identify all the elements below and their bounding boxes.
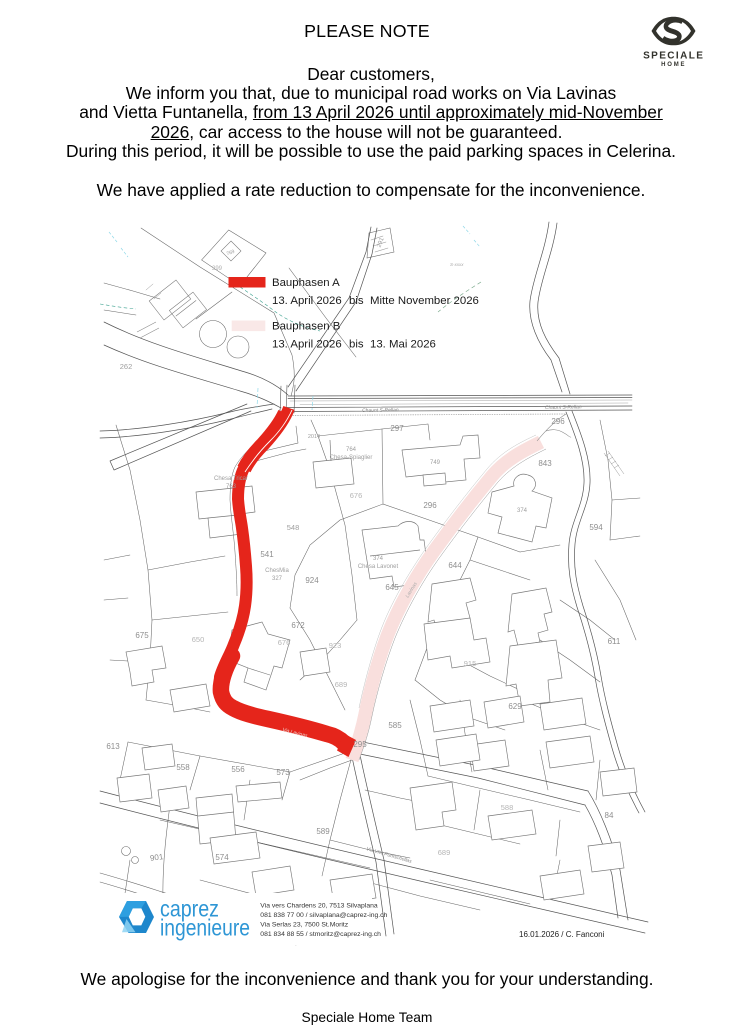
- svg-text:13. April 2026bis13. Mai 2026: 13. April 2026bis13. Mai 2026: [272, 339, 436, 351]
- svg-text:689: 689: [438, 848, 451, 857]
- svg-text:295: 295: [353, 740, 367, 749]
- svg-text:84: 84: [605, 811, 614, 820]
- svg-text:Chesa Tricar: Chesa Tricar: [214, 476, 248, 482]
- svg-text:749: 749: [430, 460, 441, 466]
- svg-text:588: 588: [501, 803, 514, 812]
- svg-text:374: 374: [517, 508, 528, 514]
- svg-text:Bauphasen B: Bauphasen B: [272, 321, 340, 333]
- svg-text:299: 299: [212, 266, 223, 272]
- svg-text:541: 541: [260, 550, 274, 559]
- svg-text:262: 262: [120, 362, 133, 371]
- svg-text:644: 644: [448, 561, 462, 570]
- svg-text:2014: 2014: [308, 434, 320, 440]
- svg-text:327: 327: [272, 576, 283, 582]
- svg-text:585: 585: [388, 721, 402, 730]
- svg-text:548: 548: [287, 523, 300, 532]
- svg-text:Via vers Chardens 20, 7513 Sil: Via vers Chardens 20, 7513 Silvaplana: [260, 903, 378, 910]
- svg-text:924: 924: [305, 576, 319, 585]
- svg-text:901: 901: [149, 852, 164, 863]
- svg-text:Chaunt S-Rellan: Chaunt S-Rellan: [362, 407, 399, 414]
- svg-text:374: 374: [373, 556, 384, 562]
- svg-text:574: 574: [215, 853, 229, 862]
- svg-text:689: 689: [335, 680, 348, 689]
- svg-text:558: 558: [176, 763, 190, 772]
- svg-text:13. April 2026bisMitte Novembe: 13. April 2026bisMitte November 2026: [272, 295, 479, 307]
- svg-text:675: 675: [135, 631, 149, 640]
- svg-text:672: 672: [291, 621, 305, 630]
- svg-text:650: 650: [192, 635, 205, 644]
- svg-text:629: 629: [508, 702, 522, 711]
- svg-text:ingenieure: ingenieure: [160, 915, 250, 941]
- svg-text:923: 923: [329, 641, 342, 650]
- svg-text:556: 556: [231, 765, 245, 774]
- svg-text:573: 573: [276, 768, 290, 777]
- svg-text:ChesMia: ChesMia: [265, 568, 289, 574]
- svg-text:611: 611: [608, 637, 621, 646]
- svg-text:081 838 77 00 / silvaplana@cap: 081 838 77 00 / silvaplana@caprez-ing.ch: [260, 912, 387, 919]
- svg-text:676: 676: [278, 638, 291, 647]
- svg-text:764: 764: [346, 447, 357, 453]
- svg-text:769: 769: [226, 249, 236, 258]
- svg-text:Via Vier Puntschellas: Via Vier Puntschellas: [365, 846, 412, 865]
- svg-text:763: 763: [226, 484, 237, 490]
- svg-text:Chesa Lavonet: Chesa Lavonet: [358, 564, 399, 570]
- svg-text:594: 594: [589, 523, 603, 532]
- svg-text:Bauphasen A: Bauphasen A: [272, 277, 340, 289]
- svg-text:589: 589: [316, 827, 330, 836]
- svg-text:Chesa-Spiaglier: Chesa-Spiaglier: [330, 455, 373, 461]
- svg-text:613: 613: [106, 742, 120, 751]
- svg-text:Via Serlas 23, 7500 St.Moritz: Via Serlas 23, 7500 St.Moritz: [260, 922, 349, 929]
- svg-text:296: 296: [423, 501, 437, 510]
- svg-text:S-xxxx: S-xxxx: [450, 262, 464, 267]
- svg-text:843: 843: [538, 459, 552, 468]
- svg-text:Chaunt S-Rellan: Chaunt S-Rellan: [545, 404, 582, 411]
- svg-text:645: 645: [385, 583, 399, 592]
- svg-text:296: 296: [551, 417, 565, 426]
- svg-text:081 834 88 55 / stmoritz@capre: 081 834 88 55 / stmoritz@caprez-ing.ch: [260, 931, 381, 938]
- svg-text:915: 915: [464, 659, 477, 668]
- svg-text:676: 676: [350, 491, 363, 500]
- svg-text:297: 297: [390, 424, 404, 433]
